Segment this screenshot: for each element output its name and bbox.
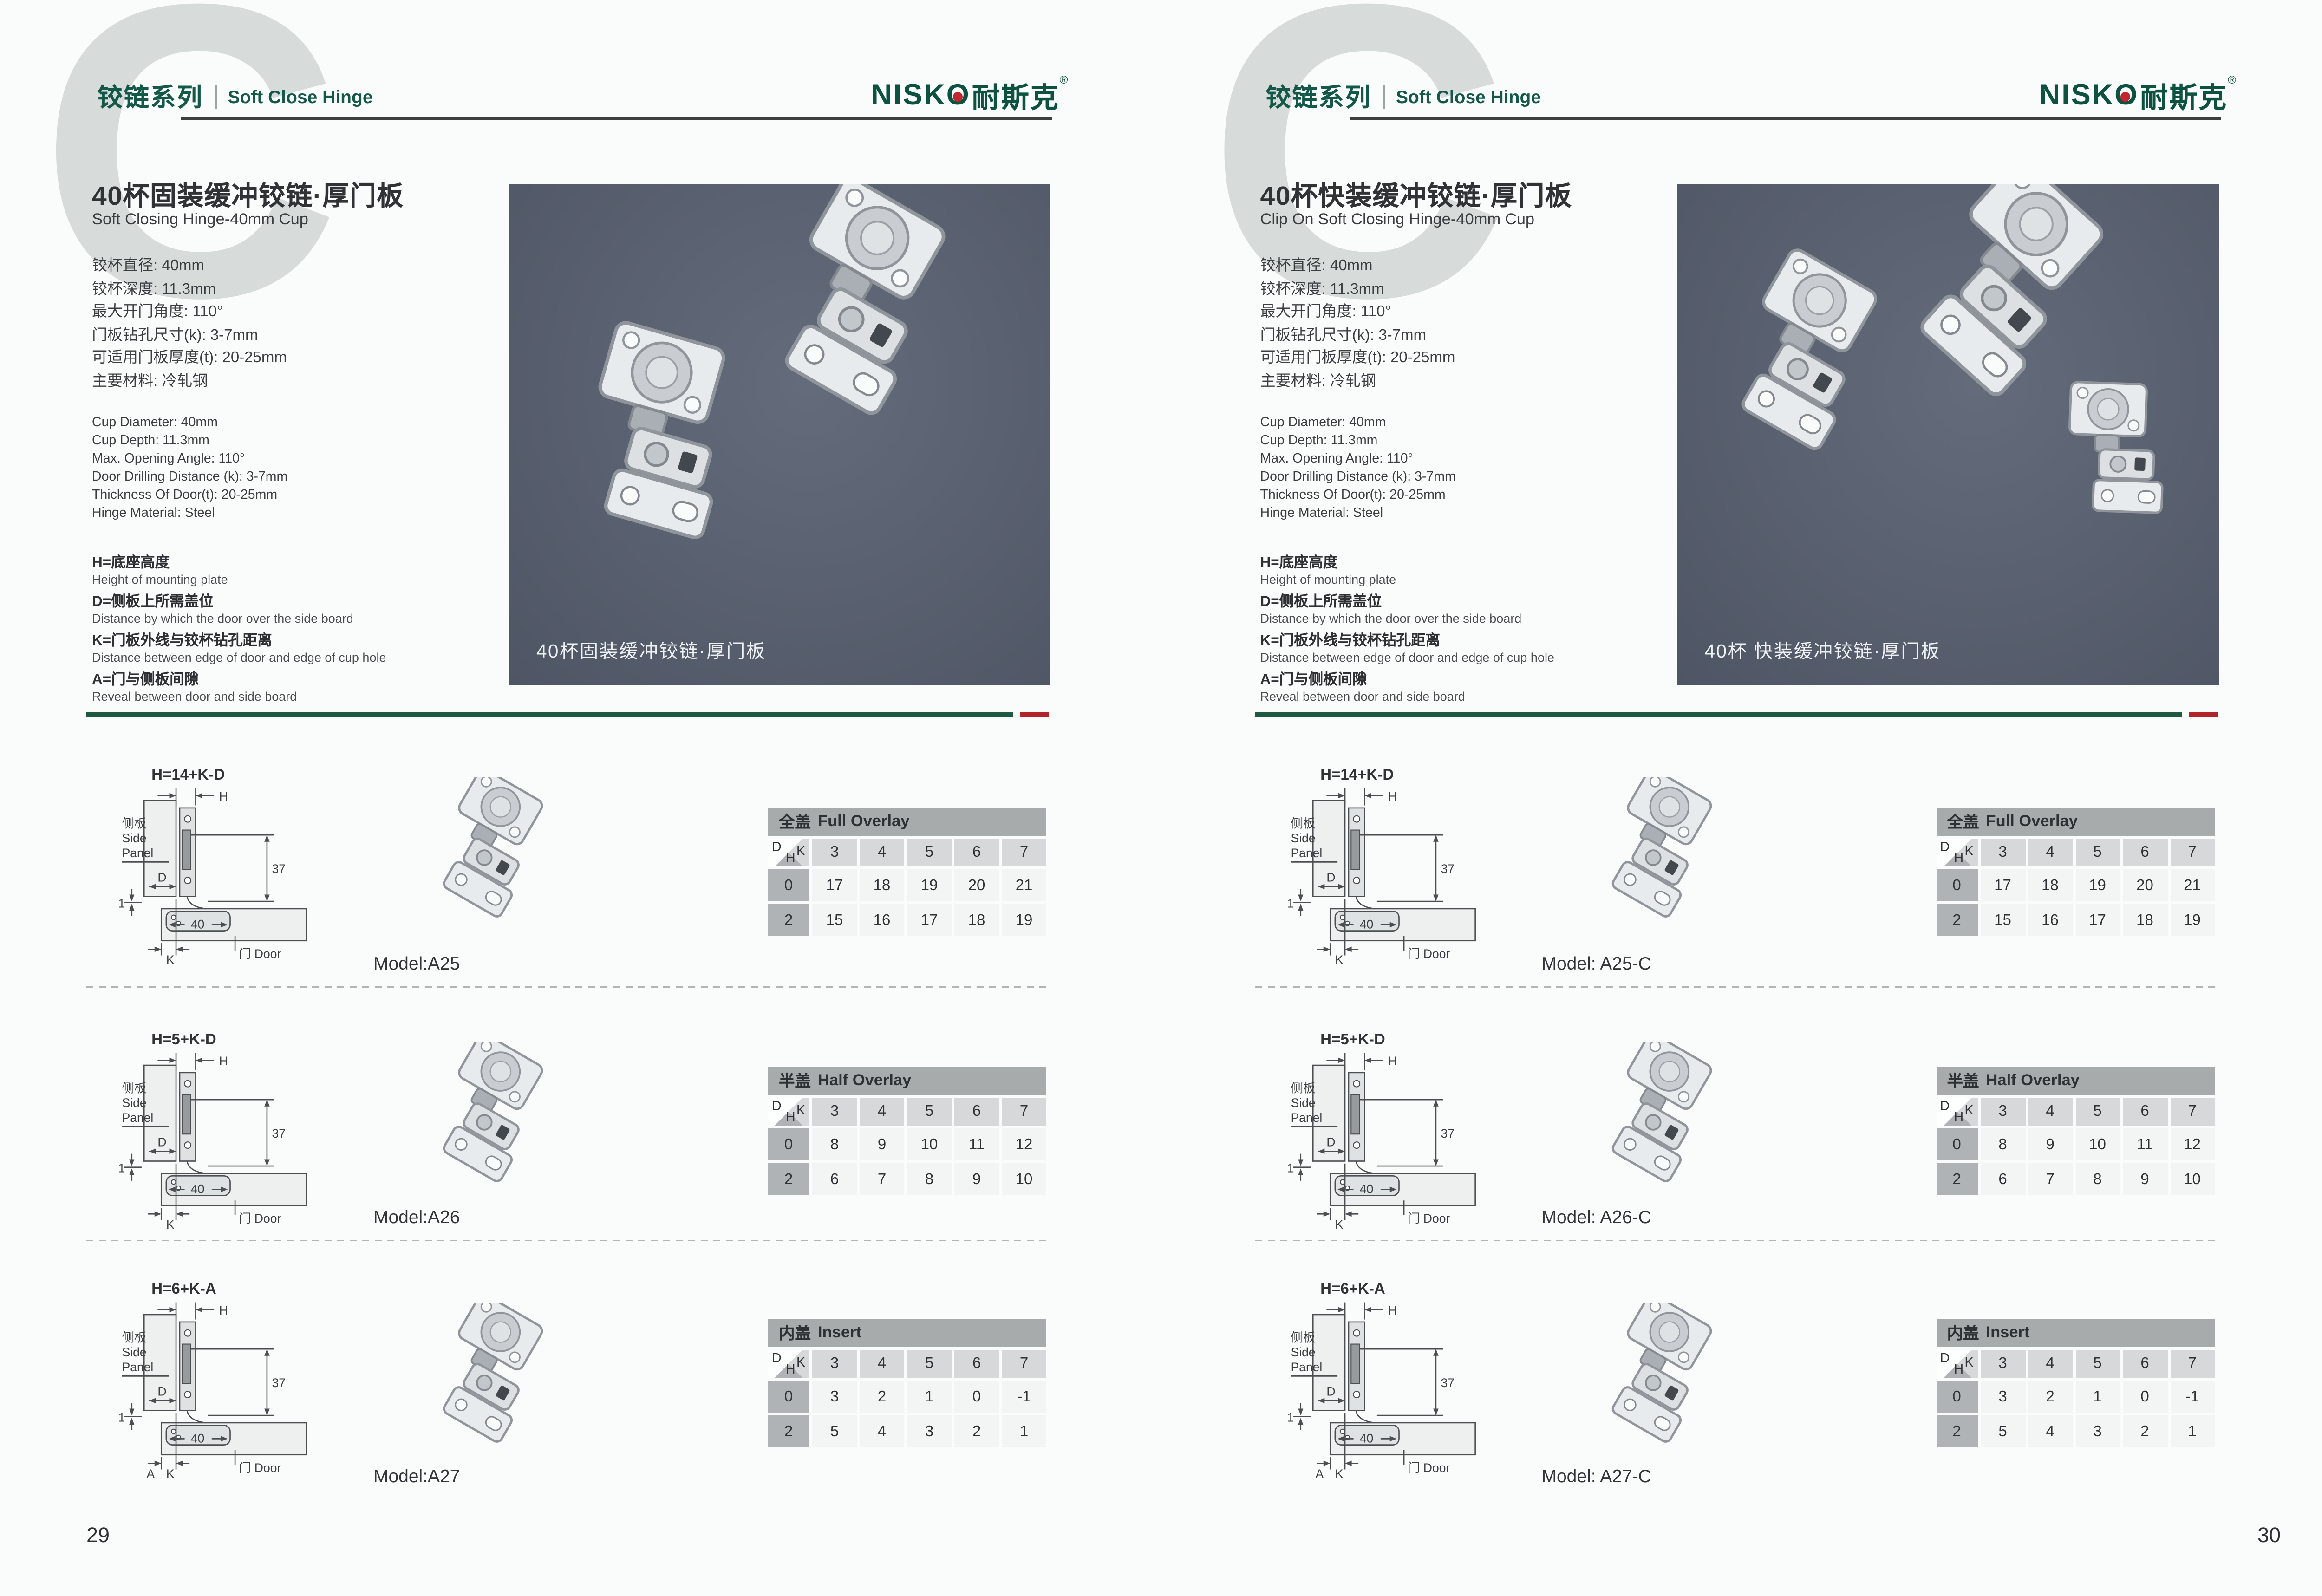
- value-cell: 1: [2170, 1415, 2215, 1447]
- row-divider: [1255, 1240, 2218, 1242]
- value-cell: 8: [812, 1128, 857, 1160]
- spec-line: 铰杯直径: 40mm: [92, 255, 287, 278]
- series-header: 铰链系列 Soft Close Hinge: [1266, 78, 1541, 114]
- product-photo-panel: 40杯固装缓冲铰链·厚门板: [509, 184, 1050, 685]
- value-cell: 1: [2075, 1381, 2120, 1413]
- k-header-cell: 4: [2028, 1350, 2073, 1378]
- table-corner-cell: D K H: [1936, 1350, 1978, 1378]
- table-title-en: Full Overlay: [818, 814, 910, 830]
- table-title: 内盖 Insert: [1936, 1319, 2215, 1347]
- table-grid: D K H 34567 0 1718192021 2 1516171819: [768, 839, 1046, 936]
- value-cell: 9: [2123, 1163, 2167, 1195]
- value-cell: 3: [907, 1415, 952, 1447]
- table-corner-cell: D K H: [768, 1098, 809, 1126]
- k-header-cell: 6: [2123, 839, 2167, 866]
- value-cell: 17: [812, 869, 857, 901]
- table-grid: D K H 34567 0 89101112 2 678910: [768, 1098, 1046, 1195]
- value-cell: 10: [2075, 1128, 2120, 1160]
- hinge-photo: [1539, 1303, 1769, 1472]
- k-header-cell: 4: [2028, 839, 2073, 866]
- model-label: Model: A27-C: [1542, 1466, 1651, 1486]
- h-row-label: 0: [1936, 1128, 1978, 1160]
- model-label: Model:A27: [373, 1466, 460, 1486]
- catalog-page-left: C 铰链系列 Soft Close Hinge NISKO 耐斯克 ® 40杯固…: [0, 0, 1168, 1596]
- legend-en: Height of mounting plate: [1260, 572, 1555, 587]
- value-cell: 19: [2075, 869, 2120, 901]
- k-header-cell: 4: [860, 1350, 904, 1378]
- value-cell: -1: [2170, 1381, 2215, 1413]
- specs-cn-list: 铰杯直径: 40mm铰杯深度: 11.3mm最大开门角度: 110°门板钻孔尺寸…: [1260, 255, 1455, 393]
- k-header-cell: 5: [907, 839, 952, 866]
- k-header-cell: 7: [2170, 839, 2215, 866]
- full-overlay-table: 全盖 Full Overlay D K H 34567 0 1718192021…: [1936, 808, 2215, 936]
- photo-caption: 40杯固装缓冲铰链·厚门板: [536, 635, 766, 663]
- diagram-formula: H=5+K-D: [151, 1031, 216, 1048]
- value-cell: 17: [907, 904, 952, 936]
- corner-k: K: [1964, 1355, 1973, 1371]
- value-cell: 10: [1002, 1163, 1046, 1195]
- specs-en-list: Cup Diameter: 40mmCup Depth: 11.3mmMax. …: [1260, 414, 1456, 522]
- k-header-cell: 6: [954, 1350, 999, 1378]
- separator-bar-green: [86, 712, 1013, 717]
- table-title: 全盖 Full Overlay: [1936, 808, 2215, 836]
- k-header-cell: 5: [907, 1350, 952, 1378]
- spec-line: Hinge Material: Steel: [1260, 504, 1456, 522]
- h-row-label: 2: [768, 904, 809, 936]
- spec-line: Thickness Of Door(t): 20-25mm: [92, 486, 287, 504]
- k-header-cell: 7: [1002, 1350, 1046, 1378]
- value-cell: 12: [1002, 1128, 1046, 1160]
- value-cell: 3: [812, 1381, 857, 1413]
- corner-d: D: [1940, 1351, 1950, 1367]
- spec-line: Cup Depth: 11.3mm: [1260, 432, 1456, 450]
- nisko-logo: NISKO 耐斯克 ®: [2039, 75, 2236, 116]
- legend-cn: A=门与侧板间隙: [1260, 671, 1555, 689]
- page-number: 30: [2257, 1524, 2281, 1548]
- value-cell: 2: [2123, 1415, 2167, 1447]
- legend-en: Height of mounting plate: [92, 572, 386, 587]
- corner-d: D: [772, 840, 782, 855]
- value-cell: 0: [954, 1381, 999, 1413]
- separator-bar-red: [2188, 712, 2218, 717]
- model-label: Model:A25: [373, 953, 460, 974]
- specs-en-list: Cup Diameter: 40mmCup Depth: 11.3mmMax. …: [92, 414, 287, 522]
- product-title-cn: 40杯快装缓冲铰链·厚门板: [1260, 176, 1572, 213]
- table-title-en: Half Overlay: [1986, 1073, 2080, 1089]
- header-divider: [1383, 85, 1385, 108]
- value-cell: 4: [860, 1415, 904, 1447]
- legend-en: Reveal between door and side board: [1260, 689, 1555, 704]
- product-photo-panel: 40杯 快装缓冲铰链·厚门板: [1677, 184, 2219, 685]
- value-cell: 18: [2123, 904, 2167, 936]
- corner-k: K: [1964, 1103, 1973, 1119]
- legend-en: Distance between edge of door and edge o…: [1260, 650, 1555, 665]
- hinge-photo: [371, 777, 600, 947]
- insert-table: 内盖 Insert D K H 34567 0 3210-1 2 54321: [1936, 1319, 2215, 1447]
- value-cell: 20: [954, 869, 999, 901]
- table-grid: D K H 34567 0 89101112 2 678910: [1936, 1098, 2215, 1195]
- table-corner-cell: D K H: [1936, 1098, 1978, 1126]
- corner-d: D: [1940, 1099, 1950, 1114]
- value-cell: 15: [812, 904, 857, 936]
- spec-line: 铰杯深度: 11.3mm: [92, 278, 287, 301]
- value-cell: 11: [2123, 1128, 2167, 1160]
- separator-bar-green: [1255, 712, 2181, 717]
- logo-red-dot-icon: [952, 92, 962, 102]
- diagram-formula: H=14+K-D: [1320, 766, 1393, 783]
- corner-h: H: [1954, 851, 1964, 866]
- value-cell: 19: [1002, 904, 1046, 936]
- k-header-cell: 3: [1981, 839, 2025, 866]
- table-title: 全盖 Full Overlay: [768, 808, 1046, 836]
- header-divider: [215, 85, 217, 108]
- k-header-cell: 3: [812, 1350, 857, 1378]
- row-divider: [86, 986, 1049, 988]
- series-header: 铰链系列 Soft Close Hinge: [98, 78, 373, 114]
- product-title-cn: 40杯固装缓冲铰链·厚门板: [92, 176, 404, 213]
- value-cell: 15: [1981, 904, 2025, 936]
- table-title-en: Half Overlay: [818, 1073, 911, 1089]
- value-cell: -1: [1002, 1381, 1046, 1413]
- k-header-cell: 5: [907, 1098, 952, 1126]
- table-title-cn: 半盖: [779, 1070, 811, 1092]
- page-number: 29: [86, 1524, 110, 1548]
- k-header-cell: 6: [954, 1098, 999, 1126]
- spec-line: Max. Opening Angle: 110°: [1260, 450, 1456, 468]
- corner-k: K: [1964, 844, 1973, 860]
- legend-cn: H=底座高度: [92, 554, 386, 572]
- table-corner-cell: D K H: [768, 839, 809, 866]
- legend-cn: A=门与侧板间隙: [92, 671, 386, 689]
- value-cell: 21: [1002, 869, 1046, 901]
- dim-a-label: A: [147, 1467, 155, 1481]
- corner-h: H: [786, 1362, 796, 1378]
- corner-k: K: [796, 1103, 805, 1119]
- spec-line: Door Drilling Distance (k): 3-7mm: [1260, 468, 1456, 486]
- corner-h: H: [1954, 1110, 1964, 1126]
- value-cell: 19: [907, 869, 952, 901]
- value-cell: 17: [1981, 869, 2025, 901]
- k-header-cell: 6: [2123, 1350, 2167, 1378]
- value-cell: 5: [1981, 1415, 2025, 1447]
- spec-line: Hinge Material: Steel: [92, 504, 287, 522]
- specs-cn-list: 铰杯直径: 40mm铰杯深度: 11.3mm最大开门角度: 110°门板钻孔尺寸…: [92, 255, 287, 393]
- value-cell: 18: [954, 904, 999, 936]
- spec-line: 主要材料: 冷轧钢: [1260, 370, 1455, 393]
- legend-en: Distance between edge of door and edge o…: [92, 650, 386, 665]
- k-header-cell: 3: [812, 1098, 857, 1126]
- table-title-cn: 内盖: [1947, 1322, 1979, 1344]
- registered-mark: ®: [2228, 74, 2236, 86]
- legend-en: Distance by which the door over the side…: [1260, 611, 1555, 626]
- value-cell: 19: [2170, 904, 2215, 936]
- h-row-label: 2: [1936, 904, 1978, 936]
- k-header-cell: 6: [954, 839, 999, 866]
- hinge-photo: [1539, 1042, 1769, 1212]
- table-title-en: Full Overlay: [1986, 814, 2078, 830]
- table-grid: D K H 34567 0 1718192021 2 1516171819: [1936, 839, 2215, 936]
- table-title-en: Insert: [1986, 1325, 2030, 1342]
- value-cell: 6: [812, 1163, 857, 1195]
- spec-line: 主要材料: 冷轧钢: [92, 370, 287, 393]
- half-overlay-table: 半盖 Half Overlay D K H 34567 0 89101112 2…: [1936, 1067, 2215, 1195]
- k-header-cell: 3: [812, 839, 857, 866]
- table-corner-cell: D K H: [1936, 839, 1978, 866]
- legend-cn: D=侧板上所需盖位: [1260, 593, 1555, 611]
- diagram-formula: H=6+K-A: [1320, 1280, 1385, 1297]
- value-cell: 8: [1981, 1128, 2025, 1160]
- k-header-cell: 5: [2075, 1098, 2120, 1126]
- value-cell: 2: [954, 1415, 999, 1447]
- product-title-en: Soft Closing Hinge-40mm Cup: [92, 212, 308, 228]
- installation-diagram-half-overlay: H=5+K-D: [1285, 1028, 1494, 1231]
- h-row-label: 0: [768, 1128, 809, 1160]
- h-row-label: 2: [768, 1415, 809, 1447]
- value-cell: 8: [2075, 1163, 2120, 1195]
- value-cell: 2: [860, 1381, 904, 1413]
- value-cell: 16: [2028, 904, 2073, 936]
- table-grid: D K H 34567 0 3210-1 2 54321: [1936, 1350, 2215, 1447]
- logo-cn-text: 耐斯克: [972, 75, 1060, 116]
- k-header-cell: 5: [2075, 1350, 2120, 1378]
- h-row-label: 0: [1936, 1381, 1978, 1413]
- row-divider: [1255, 986, 2218, 988]
- legend-cn: K=门板外线与铰杯钻孔距离: [92, 632, 386, 650]
- k-header-cell: 4: [860, 839, 904, 866]
- product-photo-illustration: [509, 184, 1050, 644]
- dim-a-label: A: [1315, 1467, 1323, 1481]
- value-cell: 3: [2075, 1415, 2120, 1447]
- corner-k: K: [796, 844, 805, 860]
- spec-line: 最大开门角度: 110°: [92, 301, 287, 324]
- k-header-cell: 7: [1002, 1098, 1046, 1126]
- catalog-spread: C 铰链系列 Soft Close Hinge NISKO 耐斯克 ® 40杯固…: [0, 0, 2322, 1596]
- h-row-label: 0: [768, 1381, 809, 1413]
- value-cell: 8: [907, 1163, 952, 1195]
- corner-d: D: [1940, 840, 1950, 855]
- spec-line: 门板钻孔尺寸(k): 3-7mm: [1260, 324, 1455, 347]
- legend-en: Reveal between door and side board: [92, 689, 386, 704]
- k-header-cell: 4: [860, 1098, 904, 1126]
- spec-line: Door Drilling Distance (k): 3-7mm: [92, 468, 287, 486]
- catalog-page-right: C 铰链系列 Soft Close Hinge NISKO 耐斯克 ® 40杯快…: [1168, 0, 2322, 1596]
- diagram-formula: H=5+K-D: [1320, 1031, 1385, 1048]
- value-cell: 10: [2170, 1163, 2215, 1195]
- spec-line: 门板钻孔尺寸(k): 3-7mm: [92, 324, 287, 347]
- value-cell: 4: [2028, 1415, 2073, 1447]
- table-grid: D K H 34567 0 3210-1 2 54321: [768, 1350, 1046, 1447]
- corner-h: H: [786, 1110, 796, 1126]
- dimension-legend: H=底座高度 Height of mounting plate D=侧板上所需盖…: [92, 554, 386, 710]
- h-row-label: 0: [768, 869, 809, 901]
- header-rule: [1350, 117, 2220, 120]
- value-cell: 18: [860, 869, 904, 901]
- value-cell: 7: [860, 1163, 904, 1195]
- product-photo-illustration: [1677, 184, 2219, 644]
- value-cell: 16: [860, 904, 904, 936]
- value-cell: 18: [2028, 869, 2073, 901]
- value-cell: 11: [954, 1128, 999, 1160]
- k-header-cell: 7: [2170, 1350, 2215, 1378]
- value-cell: 1: [907, 1381, 952, 1413]
- table-title: 半盖 Half Overlay: [768, 1067, 1046, 1095]
- logo-cn-text: 耐斯克: [2140, 75, 2228, 116]
- spec-line: Max. Opening Angle: 110°: [92, 450, 287, 468]
- value-cell: 0: [2123, 1381, 2167, 1413]
- legend-cn: D=侧板上所需盖位: [92, 593, 386, 611]
- logo-red-dot-icon: [2120, 92, 2130, 102]
- spec-line: Cup Depth: 11.3mm: [92, 432, 287, 450]
- value-cell: 5: [812, 1415, 857, 1447]
- value-cell: 21: [2170, 869, 2215, 901]
- value-cell: 9: [2028, 1128, 2073, 1160]
- k-header-cell: 7: [1002, 839, 1046, 866]
- k-header-cell: 6: [2123, 1098, 2167, 1126]
- value-cell: 20: [2123, 869, 2167, 901]
- separator-bar-red: [1020, 712, 1049, 717]
- installation-diagram-full-overlay: H=14+K-D: [1285, 763, 1494, 967]
- full-overlay-table: 全盖 Full Overlay D K H 34567 0 1718192021…: [768, 808, 1046, 936]
- spec-line: Cup Diameter: 40mm: [92, 414, 287, 432]
- legend-cn: K=门板外线与铰杯钻孔距离: [1260, 632, 1555, 650]
- h-row-label: 2: [768, 1163, 809, 1195]
- corner-d: D: [772, 1099, 782, 1114]
- legend-cn: H=底座高度: [1260, 554, 1555, 572]
- spec-line: 可适用门板厚度(t): 20-25mm: [92, 347, 287, 370]
- spec-line: 可适用门板厚度(t): 20-25mm: [1260, 347, 1455, 370]
- value-cell: 10: [907, 1128, 952, 1160]
- dimension-legend: H=底座高度 Height of mounting plate D=侧板上所需盖…: [1260, 554, 1555, 710]
- table-title-cn: 内盖: [779, 1322, 811, 1344]
- value-cell: 9: [860, 1128, 904, 1160]
- diagram-formula: H=14+K-D: [151, 766, 225, 783]
- installation-diagram-insert: H=6+K-A A: [1285, 1277, 1494, 1481]
- value-cell: 2: [2028, 1381, 2073, 1413]
- installation-diagram-full-overlay: H=14+K-D: [117, 763, 326, 967]
- series-title-cn: 铰链系列: [98, 78, 203, 114]
- k-header-cell: 3: [1981, 1098, 2025, 1126]
- half-overlay-table: 半盖 Half Overlay D K H 34567 0 89101112 2…: [768, 1067, 1046, 1195]
- h-row-label: 0: [1936, 869, 1978, 901]
- table-corner-cell: D K H: [768, 1350, 809, 1378]
- installation-diagram-insert: H=6+K-A A: [117, 1277, 326, 1481]
- spec-line: 最大开门角度: 110°: [1260, 301, 1455, 324]
- model-label: Model: A25-C: [1542, 953, 1651, 974]
- h-row-label: 2: [1936, 1163, 1978, 1195]
- diagram-formula: H=6+K-A: [151, 1280, 216, 1297]
- h-row-label: 2: [1936, 1415, 1978, 1447]
- product-title-en: Clip On Soft Closing Hinge-40mm Cup: [1260, 212, 1535, 228]
- series-title-en: Soft Close Hinge: [228, 86, 373, 107]
- installation-diagram-half-overlay: H=5+K-D: [117, 1028, 326, 1231]
- table-title-cn: 半盖: [1947, 1070, 1979, 1092]
- spec-line: 铰杯直径: 40mm: [1260, 255, 1455, 278]
- table-title: 内盖 Insert: [768, 1319, 1046, 1347]
- table-title-cn: 全盖: [1947, 811, 1979, 833]
- legend-en: Distance by which the door over the side…: [92, 611, 386, 626]
- value-cell: 7: [2028, 1163, 2073, 1195]
- value-cell: 3: [1981, 1381, 2025, 1413]
- spec-line: Thickness Of Door(t): 20-25mm: [1260, 486, 1456, 504]
- k-header-cell: 5: [2075, 839, 2120, 866]
- spec-line: 铰杯深度: 11.3mm: [1260, 278, 1455, 301]
- k-header-cell: 7: [2170, 1098, 2215, 1126]
- k-header-cell: 4: [2028, 1098, 2073, 1126]
- series-title-cn: 铰链系列: [1266, 78, 1372, 114]
- corner-h: H: [786, 851, 796, 866]
- registered-mark: ®: [1060, 74, 1068, 86]
- table-title-en: Insert: [818, 1325, 861, 1342]
- k-header-cell: 3: [1981, 1350, 2025, 1378]
- value-cell: 9: [954, 1163, 999, 1195]
- hinge-photo: [371, 1303, 600, 1472]
- photo-caption: 40杯 快装缓冲铰链·厚门板: [1705, 635, 1941, 663]
- hinge-photo: [371, 1042, 600, 1212]
- value-cell: 1: [1002, 1415, 1046, 1447]
- row-divider: [86, 1240, 1049, 1242]
- hinge-photo: [1539, 777, 1769, 947]
- nisko-logo: NISKO 耐斯克 ®: [871, 75, 1068, 116]
- table-title: 半盖 Half Overlay: [1936, 1067, 2215, 1095]
- value-cell: 12: [2170, 1128, 2215, 1160]
- corner-k: K: [796, 1355, 805, 1371]
- spec-line: Cup Diameter: 40mm: [1260, 414, 1456, 432]
- header-rule: [181, 117, 1052, 120]
- insert-table: 内盖 Insert D K H 34567 0 3210-1 2 54321: [768, 1319, 1046, 1447]
- model-label: Model: A26-C: [1542, 1206, 1651, 1227]
- table-title-cn: 全盖: [779, 811, 811, 833]
- value-cell: 17: [2075, 904, 2120, 936]
- corner-h: H: [1954, 1362, 1964, 1378]
- corner-d: D: [772, 1351, 782, 1367]
- value-cell: 6: [1981, 1163, 2025, 1195]
- model-label: Model:A26: [373, 1206, 460, 1227]
- series-title-en: Soft Close Hinge: [1396, 86, 1541, 107]
